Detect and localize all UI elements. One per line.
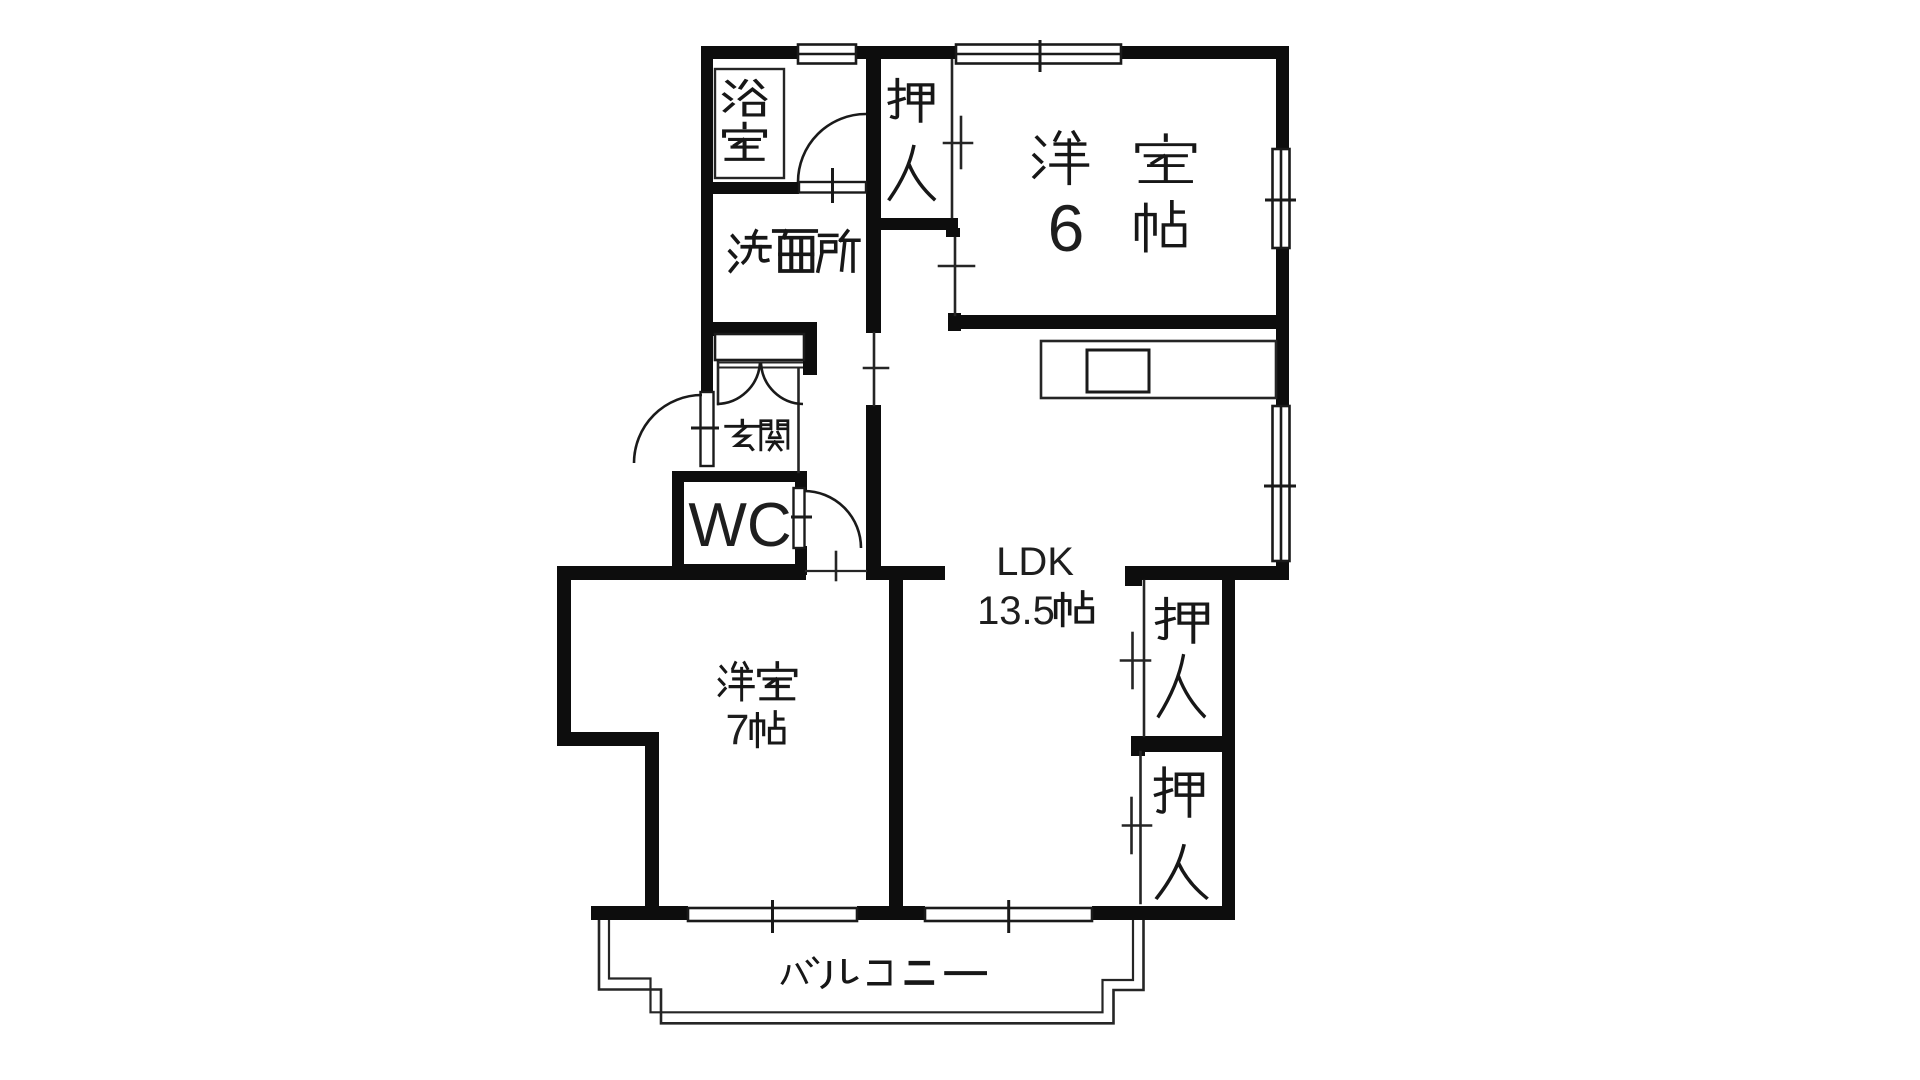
svg-text:WC: WC	[688, 491, 791, 560]
svg-text:LDK: LDK	[996, 540, 1074, 584]
svg-text:7: 7	[726, 706, 750, 754]
svg-text:13.5: 13.5	[977, 589, 1055, 633]
svg-text:6: 6	[1048, 191, 1085, 265]
